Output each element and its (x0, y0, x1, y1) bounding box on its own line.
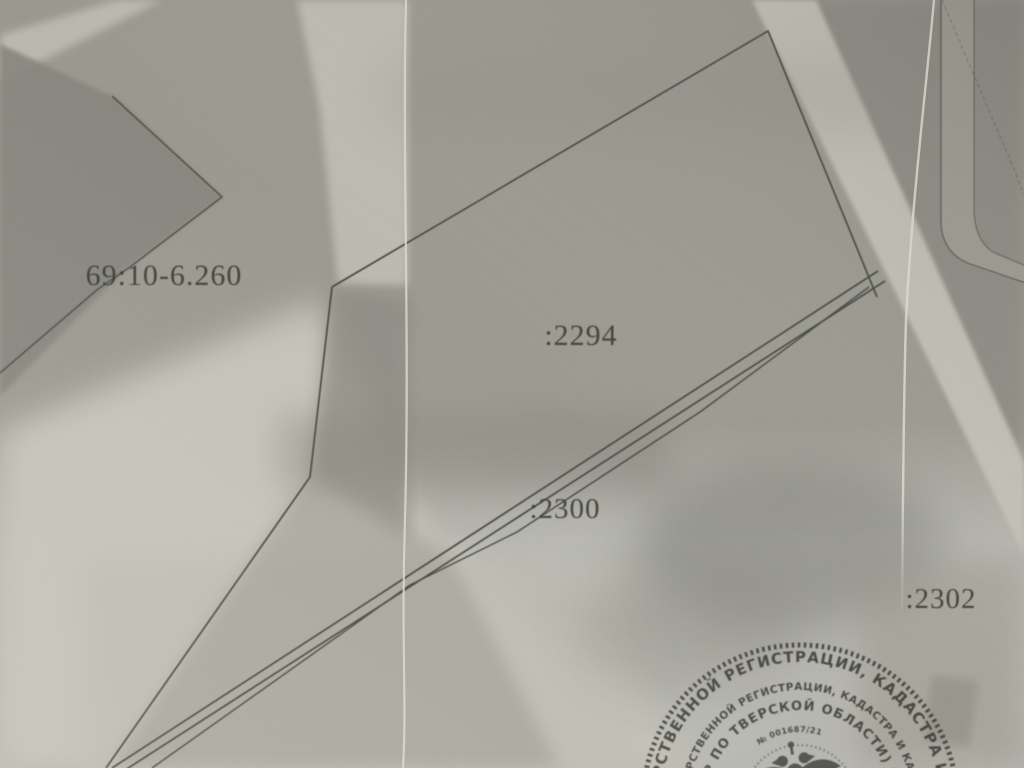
scan-light-gradient (0, 0, 1024, 768)
cadastral-map-scan: 69:10-6.260 :2294 :2300 :2302 ГОСУДАРСТВ… (0, 0, 1024, 768)
scanned-cadastral-map-page: 69:10-6.260 :2294 :2300 :2302 ГОСУДАРСТВ… (0, 0, 1024, 768)
